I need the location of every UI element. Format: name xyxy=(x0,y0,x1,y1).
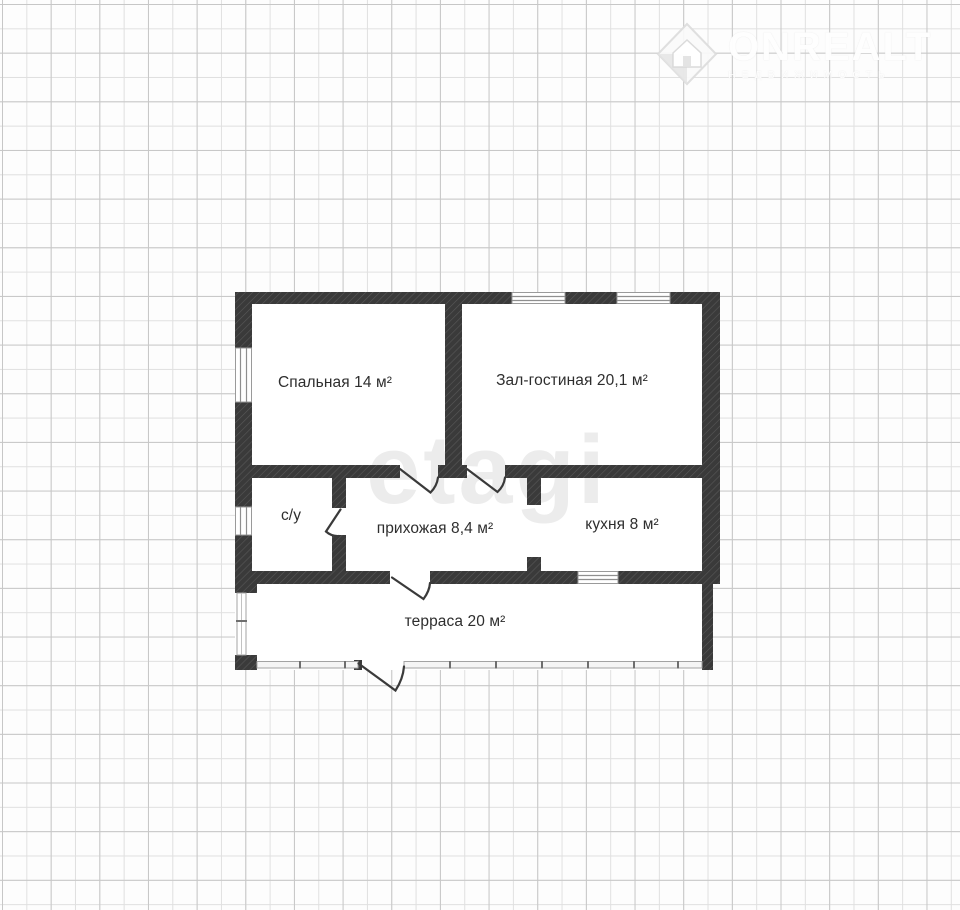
wall-middle xyxy=(438,465,467,478)
wall-room-divider xyxy=(445,304,462,465)
room-label-kitchen: кухня 8 м² xyxy=(585,516,658,534)
terrace-post xyxy=(235,655,257,670)
wall-middle xyxy=(235,465,400,478)
wall-bathroom xyxy=(332,478,346,508)
room-label-terrace: терраса 20 м² xyxy=(405,613,506,631)
wall-left xyxy=(235,402,252,507)
terrace-wall-right xyxy=(702,584,713,670)
wall-middle xyxy=(505,465,720,478)
wall-bottom xyxy=(618,571,720,584)
wall-kitchen-stub xyxy=(527,557,541,571)
room-label-living-room: Зал-гостиная 20,1 м² xyxy=(496,372,648,390)
wall-top xyxy=(235,292,512,304)
wall-bathroom xyxy=(332,535,346,571)
floor-plan-drawing: etagi xyxy=(0,0,960,910)
floor-plan-page: ONREALT НЕДВИЖИМОСТЬ etagi xyxy=(0,0,960,910)
window-bathroom xyxy=(236,507,252,535)
room-label-bedroom: Спальная 14 м² xyxy=(278,374,392,392)
wall-bottom xyxy=(430,571,578,584)
wall-bottom xyxy=(235,571,390,584)
window-bedroom xyxy=(236,348,252,402)
wall-right xyxy=(702,292,720,584)
room-label-bathroom: с/у xyxy=(281,507,301,525)
wall-left xyxy=(235,292,252,348)
terrace-post xyxy=(235,584,257,593)
window-kitchen xyxy=(578,572,618,584)
window-living-room-2 xyxy=(617,293,670,304)
wall-top xyxy=(565,292,617,304)
window-living-room-1 xyxy=(512,293,565,304)
wall-kitchen-stub xyxy=(527,478,541,505)
room-label-hallway: прихожая 8,4 м² xyxy=(377,520,494,538)
